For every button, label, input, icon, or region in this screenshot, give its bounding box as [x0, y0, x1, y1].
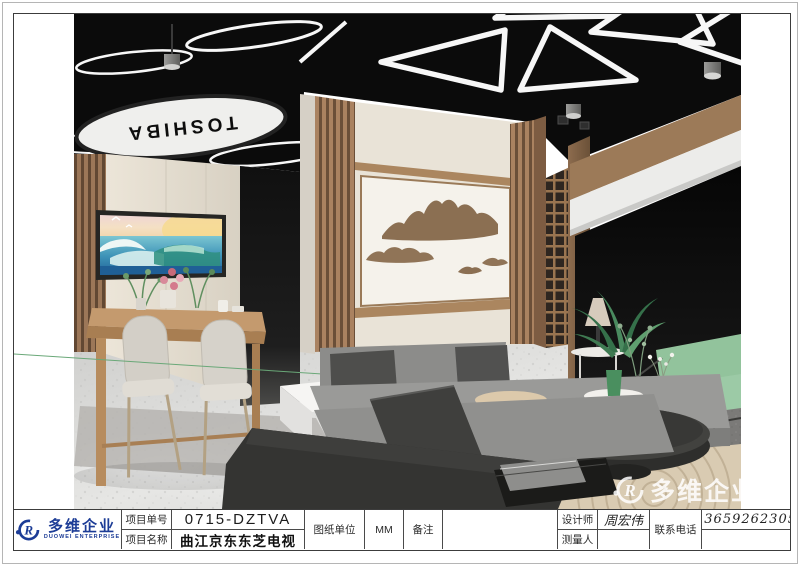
feature-wall [300, 94, 546, 354]
remark-value [443, 510, 558, 549]
project-name-label: 项目名称 [122, 530, 172, 549]
watermark: R 多维企业 [612, 472, 741, 508]
phone-value-empty [702, 530, 790, 549]
designer-label: 设计师 [558, 510, 598, 530]
company-name-cn: 多维企业 [48, 519, 116, 534]
project-no-label: 项目单号 [122, 510, 172, 530]
unit-value: MM [365, 510, 404, 549]
phone-label: 联系电话 [650, 510, 702, 549]
remark-label: 备注 [404, 510, 443, 549]
svg-text:R: R [23, 522, 33, 537]
company-logo: R 多维企业 DUOWEI ENTERPRISE [14, 510, 122, 549]
surveyor-label: 测量人 [558, 530, 598, 549]
surveyor-value [598, 530, 650, 549]
ocean-painting [100, 212, 230, 276]
svg-text:R: R [623, 481, 635, 500]
blank-margin [741, 14, 790, 509]
showroom-render: TOSHIBA [14, 14, 741, 509]
project-no-value: 0715-DZTVA [172, 510, 305, 530]
dark-doorway [240, 166, 300, 406]
title-block: R 多维企业 DUOWEI ENTERPRISE 项目单号 项目名称 0715-… [14, 509, 790, 550]
company-logo-icon: R [15, 517, 41, 543]
watermark-text: 多维企业 [650, 472, 741, 508]
project-name-value: 曲江京东东芝电视 [172, 530, 305, 549]
designer-value: 周宏伟 [598, 510, 650, 530]
company-name-en: DUOWEI ENTERPRISE [44, 535, 120, 541]
drawing-frame: TOSHIBA [13, 13, 791, 551]
watermark-logo-icon: R [612, 473, 646, 507]
showroom-scene: TOSHIBA [14, 14, 741, 509]
mountain-art-panel [361, 176, 510, 306]
tv-screen [96, 210, 230, 280]
unit-label: 图纸单位 [305, 510, 365, 549]
phone-value: 13659262305 [702, 510, 790, 530]
